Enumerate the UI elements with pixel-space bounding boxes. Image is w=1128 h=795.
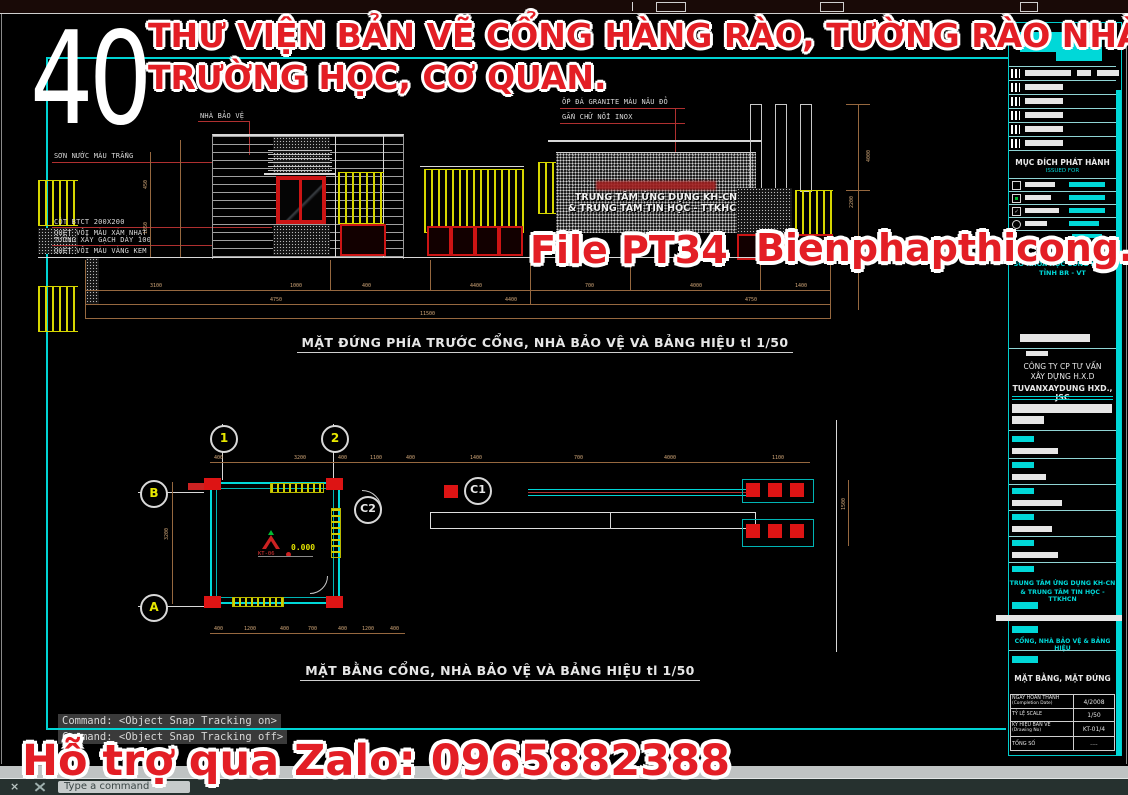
sig-bar — [1012, 436, 1034, 442]
door-label-c1: C1 — [464, 477, 492, 505]
company-line2: XÂY DỰNG H.X.D — [1009, 372, 1116, 381]
tb-bar — [1012, 656, 1038, 663]
leader-line — [560, 123, 685, 124]
dim-label: 400 — [280, 626, 289, 632]
dim-ext — [85, 260, 86, 318]
rev-row — [1009, 67, 1116, 80]
sign-red-text — [596, 181, 716, 190]
elevation-caption: MẶT ĐỨNG PHÍA TRƯỚC CỔNG, NHÀ BẢO VỆ VÀ … — [297, 335, 794, 353]
grid-bubble-2: 2 — [321, 425, 349, 453]
sig-bar — [1012, 540, 1034, 546]
tb-r4-label: TỔNG SỐ — [1011, 737, 1073, 747]
column-plan — [326, 478, 343, 490]
rev-row — [1009, 95, 1116, 108]
dim-label: 4750 — [270, 297, 282, 303]
pillar — [800, 104, 812, 192]
level-marker-inner — [266, 541, 276, 549]
tb-r1-value: 4/2008 — [1074, 695, 1114, 706]
tb-bar — [1012, 602, 1038, 609]
sig-bar — [1012, 566, 1034, 572]
dim-label: 1400 — [795, 283, 807, 289]
tb-sep — [1009, 348, 1116, 349]
section-line — [836, 420, 837, 652]
window-hatch — [331, 508, 341, 558]
dim-label: 4750 — [745, 297, 757, 303]
window-hatch — [270, 483, 324, 493]
column-plan — [768, 483, 782, 497]
dim-label: 700 — [574, 455, 583, 461]
dim-label: 700 — [585, 283, 594, 289]
tb-bar — [1020, 334, 1090, 342]
sill-line — [264, 173, 336, 175]
tb-cell: .... — [1073, 736, 1115, 751]
top-strip — [0, 0, 1128, 14]
tb-r2-label: TỶ LỆ SCALE — [1011, 709, 1073, 717]
post-line — [335, 134, 336, 257]
tb-cell: TỔNG SỐ — [1010, 736, 1074, 751]
fence-bars — [424, 169, 524, 233]
window-hatch — [232, 597, 284, 607]
top-strip-box — [820, 2, 844, 12]
watermark-file-label: File PT34 — [530, 228, 728, 272]
sig-bar — [1012, 474, 1046, 480]
dim-label: 400 — [214, 455, 223, 461]
watermark-title-line2: TRƯỜNG HỌC, CƠ QUAN. — [148, 58, 607, 97]
tb-sep — [1009, 536, 1116, 537]
grid-bubble-1: 1 — [210, 425, 238, 453]
column-plan — [746, 483, 760, 497]
checkbox[interactable] — [1012, 194, 1021, 203]
tb-sep — [1009, 430, 1116, 431]
dim-line — [858, 104, 859, 310]
rev-row — [1009, 109, 1116, 122]
dim-label: 400 — [338, 455, 347, 461]
tb-r2-value: 1/50 — [1074, 709, 1114, 719]
gate-rail-red — [528, 492, 750, 493]
dim-label: 400 — [214, 626, 223, 632]
canvas-right-edge — [1126, 14, 1127, 764]
leader-line — [560, 108, 685, 109]
sig-bar — [1012, 462, 1034, 468]
column-plan — [444, 485, 458, 498]
column-plan — [790, 483, 804, 497]
dim-label: 2200 — [849, 196, 855, 208]
dim-label: 1100 — [772, 455, 784, 461]
rev-row — [1009, 137, 1116, 150]
tb-bar — [1026, 351, 1048, 356]
plan-caption-wrap: MẶT BẰNG CỔNG, NHÀ BẢO VỆ VÀ BẢNG HIỆU t… — [290, 660, 710, 681]
dim-tick — [846, 190, 870, 191]
dim-line — [85, 290, 831, 291]
dim-label: 11500 — [420, 311, 435, 317]
column-plan — [204, 478, 221, 490]
tb-cell: KÝ HIỆU BẢN VẼ (Drawing No) — [1010, 721, 1074, 737]
column-plan — [204, 596, 221, 608]
top-strip-box — [1020, 2, 1038, 12]
dim-label: 400 — [362, 283, 371, 289]
level-value: 0.000 — [291, 543, 315, 552]
sign-board: TRUNG TÂM ỨNG DỤNG KH-CN & TRUNG TÂM TIN… — [556, 152, 756, 233]
tb-sep — [1009, 484, 1116, 485]
tb-cell: 4/2008 — [1073, 694, 1115, 709]
tb-r3-value: KT-01/4 — [1074, 722, 1114, 733]
autocad-window: SƠN NƯỚC MÀU TRẮNG CỘT BTCT 200X200 QUÉT… — [0, 0, 1128, 795]
dim-label: 1200 — [244, 626, 256, 632]
tb-sep — [1009, 510, 1116, 511]
tb-sep — [1009, 458, 1116, 459]
command-history-line1: Command: <Object Snap Tracking on> — [58, 714, 281, 728]
label-inox: GẮN CHỮ NỔI INOX — [562, 113, 633, 121]
checkbox[interactable] — [1012, 181, 1021, 190]
tb-bar — [1012, 416, 1044, 424]
dim-line — [85, 318, 831, 319]
sign-line2: & TRUNG TÂM TIN HỌC - TTKHCN — [556, 203, 756, 214]
agency-line2: TỈNH BR - VT — [1009, 269, 1116, 277]
issue-row: ✓ — [1009, 205, 1116, 217]
elevation-caption-wrap: MẶT ĐỨNG PHÍA TRƯỚC CỔNG, NHÀ BẢO VỆ VÀ … — [250, 332, 840, 353]
tb-bar — [1012, 404, 1112, 413]
issue-sub: ISSUED FOR — [1009, 168, 1116, 174]
column-plan — [790, 524, 804, 538]
project-line1: TRUNG TÂM ỨNG DỤNG KH-CN — [1009, 580, 1116, 587]
tb-sep — [1009, 650, 1116, 651]
dim-label: 4400 — [470, 283, 482, 289]
watermark-title-line1: THƯ VIỆN BẢN VẼ CỔNG HÀNG RÀO, TƯỜNG RÀO… — [148, 16, 1128, 55]
dim-line — [172, 482, 173, 604]
label-wall-2: QUÉT VÔI MÀU VÀNG KEM — [54, 247, 147, 255]
watermark-big-number: 40 — [30, 16, 148, 144]
fence-panel — [475, 226, 499, 256]
dim-label: 4000 — [664, 455, 676, 461]
dim-line — [210, 633, 405, 634]
dim-tick — [846, 104, 870, 105]
dim-label: 1000 — [290, 283, 302, 289]
top-strip-tick — [632, 2, 633, 11]
company-line1: CÔNG TY CP TƯ VẤN — [1009, 362, 1116, 371]
dim-label: 1500 — [841, 498, 847, 510]
label-guard-house: NHÀ BẢO VỆ — [200, 112, 244, 120]
louver — [268, 150, 332, 172]
sign-coping — [548, 140, 762, 142]
wall-stub — [188, 483, 204, 490]
dim-line — [180, 140, 181, 258]
rail-line — [420, 166, 524, 167]
canvas-left-edge — [1, 14, 2, 764]
column-plan — [326, 596, 343, 608]
dim-line — [150, 152, 151, 258]
gate-leaf-divider — [610, 512, 611, 529]
leader-line — [198, 121, 250, 122]
pillar — [775, 104, 787, 192]
close-icon[interactable]: × — [10, 780, 19, 793]
pier-hatch — [273, 225, 330, 255]
tb-rule — [1012, 396, 1113, 397]
fence-bars — [338, 172, 384, 224]
tb-cell: 1/50 — [1073, 708, 1115, 722]
level-line — [258, 556, 313, 557]
sig-bar — [1012, 526, 1052, 532]
door-label-c2: C2 — [354, 496, 382, 524]
dim-label: 4000 — [690, 283, 702, 289]
tb-cell: KT-01/4 — [1073, 721, 1115, 737]
dim-label: 1400 — [470, 455, 482, 461]
tb-cell: TỶ LỆ SCALE — [1010, 708, 1074, 722]
top-strip-box — [656, 2, 686, 12]
dim-label: 450 — [143, 180, 149, 189]
gate-leaf — [430, 512, 756, 529]
tb-r4-value: .... — [1074, 737, 1114, 747]
tb-r1-sub: (Completion Date) — [1011, 701, 1073, 706]
rev-row — [1009, 123, 1116, 136]
plan-caption: MẶT BẰNG CỔNG, NHÀ BẢO VỆ VÀ BẢNG HIỆU t… — [300, 663, 700, 681]
tb-sep — [1009, 562, 1116, 563]
tb-bar — [1012, 626, 1038, 633]
tb-r3-sub: (Drawing No) — [1011, 728, 1073, 733]
issue-row — [1009, 192, 1116, 204]
drawing-canvas[interactable] — [0, 13, 1128, 766]
watermark-website: Bienphapthicong.vn — [756, 226, 1128, 270]
level-marker-green — [268, 530, 274, 535]
fence-panel — [499, 226, 523, 256]
sig-bar — [1012, 448, 1058, 454]
dim-label: 3200 — [164, 528, 170, 540]
sig-bar — [1012, 488, 1034, 494]
dim-label: 1350 — [143, 222, 149, 234]
fence-panel — [427, 226, 451, 256]
sheet-name: MẶT BẰNG, MẶT ĐỨNG — [1009, 674, 1116, 683]
dim-line — [210, 462, 810, 463]
pillar — [750, 104, 762, 192]
fence-bars — [38, 286, 78, 332]
dim-line — [848, 480, 849, 546]
dim-label: 3100 — [150, 283, 162, 289]
sig-bar — [1012, 514, 1034, 520]
dim-label: 700 — [308, 626, 317, 632]
sheet-border-left — [46, 57, 48, 729]
leader-line — [52, 245, 212, 246]
tb-wide-band — [996, 615, 1122, 621]
checkbox-checked[interactable]: ✓ — [1012, 207, 1021, 216]
grid-bubble-B: B — [140, 480, 168, 508]
issue-row — [1009, 179, 1116, 191]
dim-label: 1200 — [362, 626, 374, 632]
dim-label: 400 — [338, 626, 347, 632]
dim-ext — [430, 260, 431, 290]
titleblock-accent-bar — [1116, 90, 1121, 756]
dim-label: 4000 — [866, 150, 872, 162]
dim-ext — [330, 260, 331, 290]
dim-label: 400 — [390, 626, 399, 632]
grid-bubble-A: A — [140, 594, 168, 622]
dim-label: 400 — [406, 455, 415, 461]
project-line2: & TRUNG TÂM TIN HỌC - TTKHCN — [1009, 589, 1116, 603]
label-granite: ỐP ĐÁ GRANITE MÀU NÂU ĐỎ — [562, 98, 668, 106]
gate-rail — [528, 495, 750, 496]
issue-title: MỤC ĐÍCH PHÁT HÀNH — [1009, 158, 1116, 167]
tb-rule — [1012, 399, 1113, 400]
dim-label: 4400 — [505, 297, 517, 303]
sig-bar — [1012, 500, 1062, 506]
tb-sep — [1009, 150, 1116, 151]
label-column-1: CỘT BTCT 200X200 — [54, 218, 125, 226]
sign-line1: TRUNG TÂM ỨNG DỤNG KH-CN — [556, 192, 756, 203]
fence-panel — [340, 224, 386, 256]
sig-bar — [1012, 552, 1058, 558]
column-plan — [768, 524, 782, 538]
gate-rail — [528, 489, 750, 490]
window-mullion — [299, 179, 302, 221]
tb-cell: NGÀY HOÀN THÀNH (Completion Date) — [1010, 694, 1074, 709]
watermark-zalo: Hỗ trợ qua Zalo: 0965882388 — [22, 736, 730, 786]
label-wall-1: TƯỜNG XÂY GẠCH DÀY 100 — [54, 236, 151, 244]
column-plan — [746, 524, 760, 538]
leader-line — [52, 162, 212, 163]
dim-label: 3200 — [294, 455, 306, 461]
fence-panel — [451, 226, 475, 256]
dim-label: 1100 — [370, 455, 382, 461]
dim-line — [85, 304, 831, 305]
footing-hatch — [86, 258, 99, 304]
rev-row — [1009, 81, 1116, 94]
